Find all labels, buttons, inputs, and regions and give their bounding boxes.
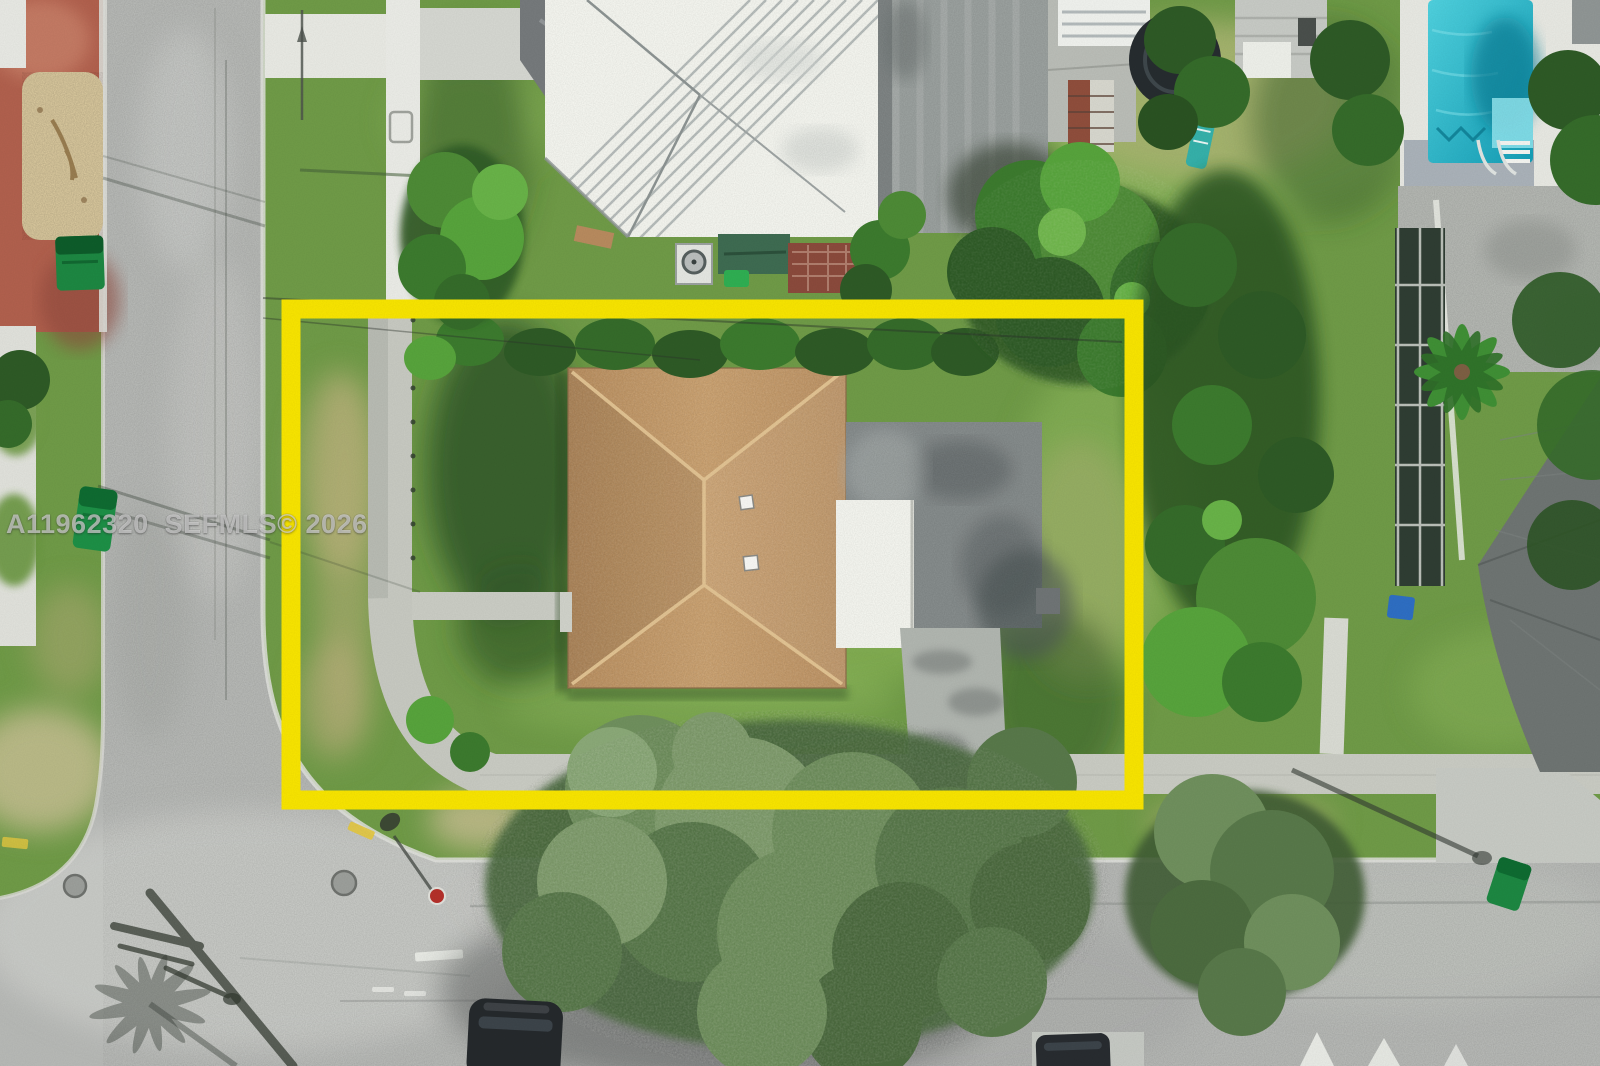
aerial-listing-photo: A11962320 SEFMLS© 2026 (0, 0, 1600, 1066)
photo-grain (0, 0, 1600, 1066)
aerial-scene (0, 0, 1600, 1066)
